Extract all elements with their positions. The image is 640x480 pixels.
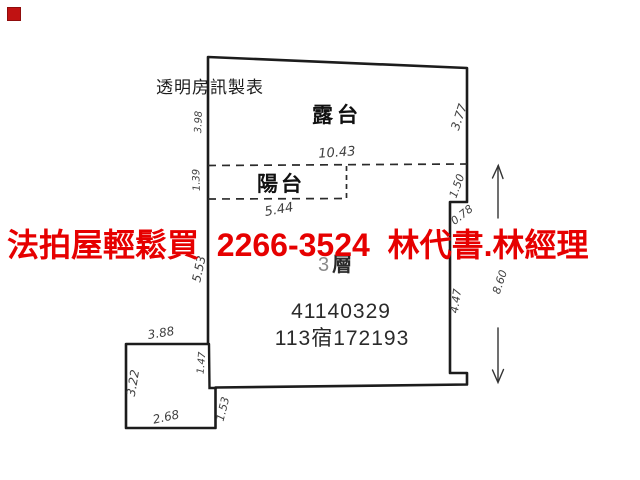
red-marker bbox=[7, 7, 21, 21]
height-dimension-arrow-top bbox=[493, 166, 504, 219]
registry-code: 113宿172193 bbox=[275, 322, 410, 352]
height-dimension-arrow-bottom bbox=[493, 328, 504, 383]
screenshot-root: 透明房訊製表 露台 陽台 3層 41140329 113宿172193 10.4… bbox=[0, 0, 640, 480]
balcony-label: 陽台 bbox=[257, 168, 305, 198]
dim-left-balcony: 1.39 bbox=[191, 169, 203, 192]
terrace-label: 露台 bbox=[312, 99, 362, 129]
dim-left-lower: 1.47 bbox=[196, 351, 209, 374]
maker-credit-label: 透明房訊製表 bbox=[156, 73, 264, 98]
balcony-dashed-line bbox=[208, 199, 347, 200]
promo-banner-text: 法拍屋輕鬆買 2266-3524 林代書.林經理 bbox=[7, 220, 589, 266]
dim-left-upper: 3.98 bbox=[193, 111, 205, 134]
registry-number: 41140329 bbox=[291, 300, 391, 324]
dim-terrace-width: 10.43 bbox=[318, 144, 356, 162]
plan-inner-wall bbox=[209, 344, 216, 388]
terrace-dashed-line bbox=[208, 164, 467, 166]
